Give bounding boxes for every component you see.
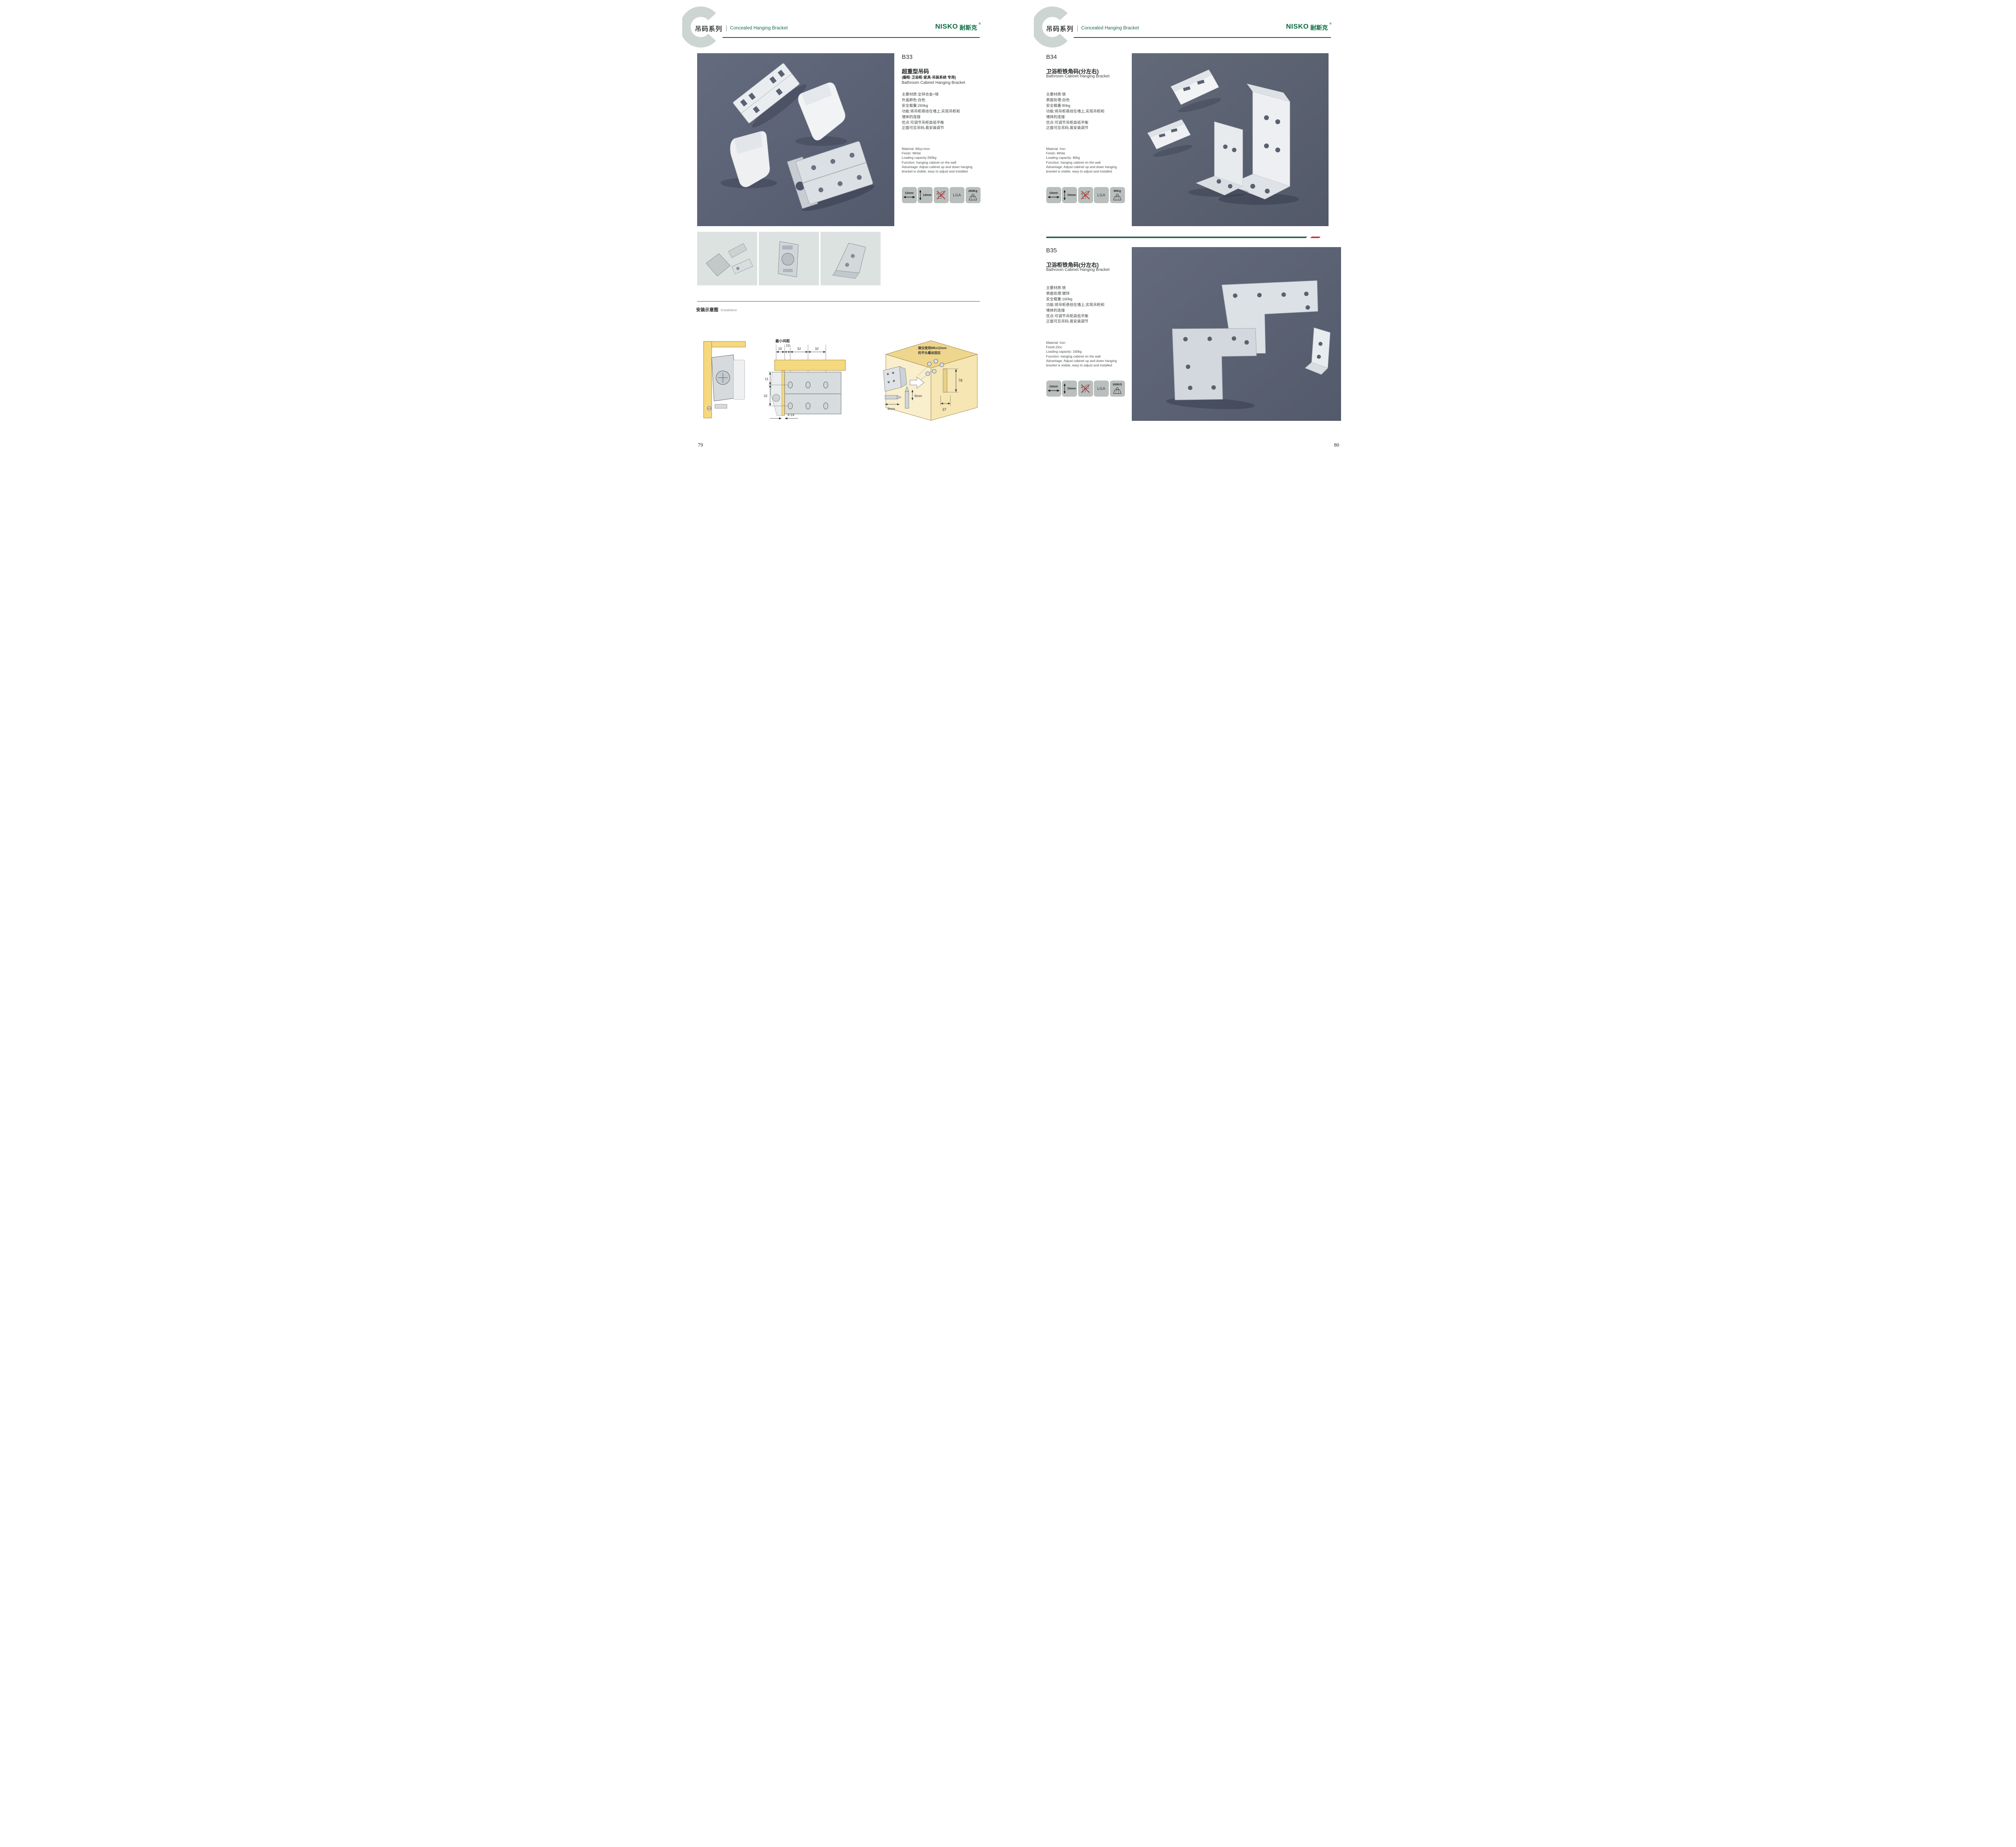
horizontal-double-arrow-icon (1048, 389, 1060, 392)
badge-hole-width: 10mm (1046, 187, 1061, 203)
page-header-left: 吊码系列 Concealed Hanging Bracket (695, 23, 788, 33)
b34-specs-en: Material: Iron Finish: White Loading cap… (1046, 147, 1117, 174)
series-title-en: Concealed Hanging Bracket (1077, 25, 1139, 31)
b33-subtitle-cn: (橱柜·卫浴柜·家具·吊装系统 专用) (902, 75, 956, 80)
b33-specs-en: Material: Alloy+iron Finish: White Loadi… (902, 147, 973, 174)
b35-title-cn: 卫浴柜铁角码(分左右) (1046, 260, 1099, 268)
svg-text:最小间距: 最小间距 (775, 339, 790, 343)
b33-thumbnail-3 (821, 232, 881, 285)
horizontal-double-arrow-icon (1048, 196, 1060, 199)
no-drill-icon (1080, 383, 1091, 394)
installation-diagram-dimensions: 最小间距 20 10 32 32 (758, 337, 850, 422)
badge-no-drill (934, 187, 949, 203)
badge-hole-height: 15mm (1062, 187, 1077, 203)
b35-code: B35 (1046, 247, 1057, 254)
weight-icon (1112, 193, 1123, 201)
vertical-double-arrow-icon (1063, 190, 1066, 200)
svg-text:37: 37 (942, 408, 946, 412)
svg-text:9mm: 9mm (887, 407, 895, 411)
b35-product-photo (1132, 247, 1341, 421)
b33-code: B33 (902, 54, 913, 60)
b34-specs-cn: 主要材质:铁 表面处理:白色 安全载重:80kg 功能:将吊柜悬挂在墙上,实现吊… (1046, 92, 1105, 131)
installation-title: 安装示意图Installation (696, 306, 737, 313)
section-separator-red (1310, 237, 1321, 238)
svg-text:78: 78 (958, 379, 962, 383)
badge-hole-height: 15mm (1062, 381, 1077, 397)
installation-diagram-side (697, 337, 752, 422)
brand-logo: NISKO 耐斯克 ® (1286, 23, 1332, 32)
brand-logo-en: NISKO (1286, 23, 1309, 31)
b33-product-photo (697, 53, 894, 226)
b35-specs-cn: 主要材质:铁 表面处理:镀锌 安全载重:160kg 功能:将吊柜悬挂在墙上,实现… (1046, 285, 1105, 324)
svg-text:的平头螺丝固定: 的平头螺丝固定 (918, 351, 941, 355)
brand-logo-en: NISKO (935, 23, 958, 31)
svg-text:9mm: 9mm (914, 394, 922, 398)
badge-hole-width: 10mm (1046, 381, 1061, 397)
installation-diagram-perspective: 建议使用M6x12mm 的平头螺丝固定 78 37 9mm (879, 337, 981, 422)
catalog-spread: 吊码系列 Concealed Hanging Bracket NISKO 耐斯克… (670, 0, 1346, 462)
series-title-cn: 吊码系列 (1046, 23, 1074, 33)
svg-text:32: 32 (815, 347, 819, 351)
brand-logo: NISKO 耐斯克 ® (935, 23, 981, 32)
page-number-left: 79 (698, 442, 703, 448)
badge-certification: LGA (950, 187, 964, 203)
weight-icon (1112, 387, 1123, 395)
svg-text:32: 32 (764, 394, 768, 398)
horizontal-double-arrow-icon (903, 196, 915, 199)
brand-logo-cn: 耐斯克 (960, 23, 977, 32)
b34-badges: 10mm 15mm LGA 80Kg (1046, 187, 1125, 203)
svg-text:32: 32 (797, 347, 801, 351)
b34-product-photo (1132, 53, 1329, 226)
b35-badges: 10mm 15mm LGA 160KG (1046, 381, 1125, 397)
vertical-double-arrow-icon (1063, 383, 1066, 394)
badge-hole-width: 12mm (902, 187, 917, 203)
badge-certification: LGA (1094, 187, 1109, 203)
installation-rule (697, 301, 980, 302)
b33-specs-cn: 主要材质:全锌合金+铁 外盖颜色:白色 安全载重:260kg 功能:将吊柜悬挂在… (902, 92, 960, 131)
b34-title-cn: 卫浴柜铁角码(分左右) (1046, 67, 1099, 75)
badge-load-capacity: 160KG (1110, 381, 1125, 397)
svg-text:20: 20 (778, 347, 782, 351)
series-title-cn: 吊码系列 (695, 23, 723, 33)
b35-title-en: Bathroom Cabinet Hanging Bracket (1046, 268, 1110, 272)
section-separator-green (1046, 237, 1308, 238)
brand-logo-cn: 耐斯克 (1310, 23, 1328, 32)
svg-text:11: 11 (765, 377, 768, 381)
b34-title-en: Bathroom Cabinet Hanging Bracket (1046, 74, 1110, 79)
registered-mark: ® (1329, 23, 1331, 25)
b33-title-en: Bathroom Cabinet Hanging Bracket (902, 81, 965, 85)
badge-no-drill (1078, 381, 1093, 397)
no-drill-icon (1080, 190, 1091, 200)
series-title-en: Concealed Hanging Bracket (726, 25, 788, 31)
page-header-right: 吊码系列 Concealed Hanging Bracket (1046, 23, 1139, 33)
b33-thumbnail-1 (697, 232, 757, 285)
vertical-double-arrow-icon (919, 190, 922, 200)
badge-load-capacity: 260Kg (966, 187, 981, 203)
header-rule (723, 37, 980, 38)
svg-text:建议使用M6x12mm: 建议使用M6x12mm (918, 346, 947, 350)
badge-load-capacity: 80Kg (1110, 187, 1125, 203)
header-rule (1074, 37, 1331, 38)
page-number-right: 80 (1334, 442, 1339, 448)
b34-code: B34 (1046, 54, 1057, 60)
weight-icon (968, 193, 978, 201)
svg-text:10: 10 (786, 343, 790, 347)
svg-text:4-14: 4-14 (787, 413, 794, 417)
no-drill-icon (936, 190, 946, 200)
badge-no-drill (1078, 187, 1093, 203)
badge-certification: LGA (1094, 381, 1109, 397)
registered-mark: ® (979, 23, 981, 25)
b35-specs-en: Material: Iron Finish:Zinc Loading capac… (1046, 341, 1117, 368)
b33-badges: 12mm 13mm LGA 260Kg (902, 187, 981, 203)
b33-title-cn: 超重型吊码 (902, 67, 929, 75)
b33-thumbnail-2 (759, 232, 819, 285)
badge-hole-height: 13mm (918, 187, 933, 203)
